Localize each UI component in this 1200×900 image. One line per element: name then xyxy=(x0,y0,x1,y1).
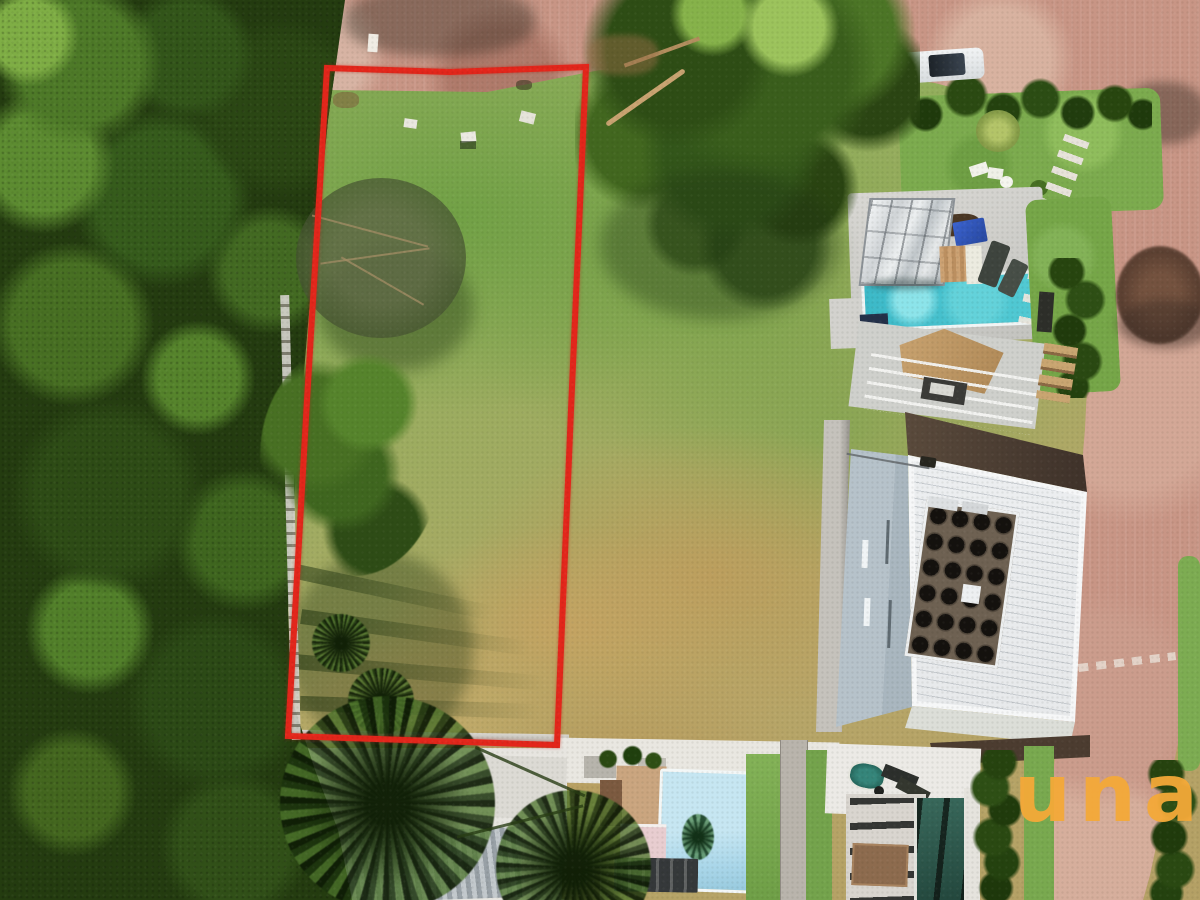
watermark-logo: una xyxy=(1014,750,1200,838)
plot-boundary-line xyxy=(288,67,586,745)
aerial-photo: una xyxy=(0,0,1200,900)
